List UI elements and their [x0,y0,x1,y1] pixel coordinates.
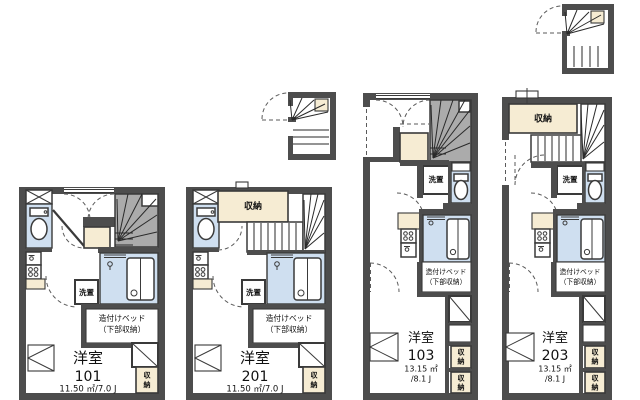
storage-box: 収 納 [585,346,605,368]
room-label-101: 洋室 101 11.50 ㎡/7.0 J [59,349,116,395]
room-type: 洋室 [240,349,270,367]
room-number: 101 [75,369,102,385]
bathroom [423,215,471,262]
staircase-icon [115,194,158,247]
stairwell-detail-topright [536,4,614,74]
bathroom [267,253,325,304]
kitchen-counter [26,279,45,289]
floorplan-drawing: 洗置 造付けベッド （下部収納） 収 納 洋室 101 11.50 ㎡/7.0 … [0,0,640,400]
door-arc [213,276,244,307]
furniture-x-icon [506,333,534,361]
storage-box: 収 納 [451,372,471,393]
vent-mark [236,182,248,188]
toilet-room [451,162,471,203]
bed-area: 造付けベッド （下部収納） [253,309,325,343]
door-arc [370,263,399,292]
storage-box: 収 納 [136,367,158,393]
room-label-203: 洋室 203 13.15 ㎡ /8.1 J [538,330,571,384]
room-area: 11.50 ㎡/7.0 J [59,385,116,395]
shelf [452,163,470,171]
genkan [400,133,428,162]
unit-103-plan: 洗置 [363,93,478,400]
furniture-x-icon [28,345,54,371]
laundry-box: 洗置 [557,166,583,194]
storage-closet: 収納 [509,104,577,133]
stove-icon [26,265,41,279]
washbasin-icon [26,190,52,204]
laundry-box: 洗置 [75,280,98,304]
room-type: 洋室 [408,330,434,346]
room-type: 洋室 [73,349,103,367]
laundry-box: 洗置 [423,166,449,194]
storage-char-bottom: 納 [144,380,151,389]
room-area-line1: 13.15 ㎡ [404,365,437,374]
bed-label-line1: 造付けベッド [560,267,601,276]
stove-icon [401,229,416,243]
bathtub-icon [294,258,321,300]
room-area-line2: /8.1 J [411,375,431,384]
laundry-label: 洗置 [429,174,444,184]
stove-icon [193,265,208,279]
kitchen-sink-icon [193,252,208,265]
window [502,140,509,185]
room-label-103: 洋室 103 13.15 ㎡ /8.1 J [404,330,437,384]
genkan [84,227,110,248]
storage-char-bottom: 納 [311,380,318,389]
room-label-201: 洋室 201 11.50 ㎡/7.0 J [226,349,283,395]
bathtub-icon [447,219,469,259]
room-number: 203 [542,348,569,364]
closet-icon [449,296,471,322]
storage-char-top: 収 [458,374,466,383]
door-arc [536,6,562,33]
bathroom [557,215,605,262]
storage-closet: 収納 [218,191,288,222]
storage-char-top: 収 [144,371,152,380]
shaft [449,325,471,342]
bed-label-line1: 造付けベッド [99,313,146,323]
laundry-label: 洗置 [563,174,578,184]
floorplan-sheet: 洗置 造付けベッド （下部収納） 収 納 洋室 101 11.50 ㎡/7.0 … [0,0,640,400]
shelf [586,163,604,171]
bed-label-line2: （下部収納） [99,324,146,334]
toilet-icon [197,208,215,240]
entry-door [64,188,114,220]
window [363,107,370,157]
toilet-icon [588,174,602,200]
room-area-line1: 13.15 ㎡ [538,365,571,374]
storage-label: 収納 [244,200,262,212]
room-number: 201 [242,369,269,385]
door-arc [262,93,288,120]
storage-box: 収 納 [303,367,325,393]
toilet-room [193,204,219,248]
bed-area: 造付けベッド （下部収納） [422,262,471,292]
door-arc [62,226,84,248]
door-arc [218,226,242,250]
bed-label-line1: 造付けベッド [266,313,313,323]
kitchen-sink-icon [26,252,41,265]
storage-char-top: 収 [311,371,319,380]
storage-box: 収 納 [585,372,605,393]
storage-char-top: 収 [458,348,466,357]
kitchen-counter [398,213,420,229]
laundry-label: 洗置 [79,287,94,297]
room-number: 103 [408,348,435,364]
storage-char-top: 収 [592,348,600,357]
washbasin-icon [193,190,219,204]
storage-char-bottom: 納 [458,383,465,392]
closet-icon [132,343,158,367]
kitchen-sink-icon [535,243,550,257]
room-type: 洋室 [542,330,568,346]
unit-101-plan: 洗置 造付けベッド （下部収納） 収 納 洋室 101 11.50 ㎡/7.0 … [19,187,165,400]
kitchen-counter [532,213,554,229]
laundry-label: 洗置 [246,287,261,297]
bed-area: 造付けベッド （下部収納） [86,309,158,343]
storage-char-top: 収 [592,374,600,383]
bed-label-line2: （下部収納） [426,277,467,286]
toilet-icon [454,174,468,200]
bathtub-icon [581,219,603,259]
unit-201-plan: 収納 [186,182,332,400]
furniture-x-icon [195,345,221,371]
bathroom [100,253,158,304]
storage-label: 収納 [534,113,552,125]
shaft [583,325,605,342]
closet-icon [583,296,605,322]
closet-icon [299,343,325,367]
stove-icon [535,229,550,243]
entry-door [376,94,430,127]
furniture-x-icon [370,333,398,361]
toilet-room [585,162,605,203]
staircase-icon [430,100,471,162]
room-area-line2: /8.1 J [545,375,565,384]
storage-char-bottom: 納 [592,383,599,392]
bed-label-line1: 造付けベッド [426,267,467,276]
toilet-icon [30,208,48,240]
storage-char-bottom: 納 [592,357,599,366]
kitchen-sink-icon [401,243,416,257]
room-area: 11.50 ㎡/7.0 J [226,385,283,395]
bed-label-line2: （下部収納） [266,324,313,334]
storage-box: 収 納 [451,346,471,368]
laundry-box: 洗置 [242,280,265,304]
bed-area: 造付けベッド （下部収納） [556,262,605,292]
kitchen-counter [193,279,212,289]
door-arc [509,263,538,292]
storage-char-bottom: 納 [458,357,465,366]
bed-label-line2: （下部収納） [560,277,601,286]
stairwell-detail-mid [262,92,336,160]
toilet-room [26,204,52,248]
bathtub-icon [127,258,154,300]
unit-203-plan: 収納 洗置 [502,88,612,400]
door-arc [46,276,77,307]
